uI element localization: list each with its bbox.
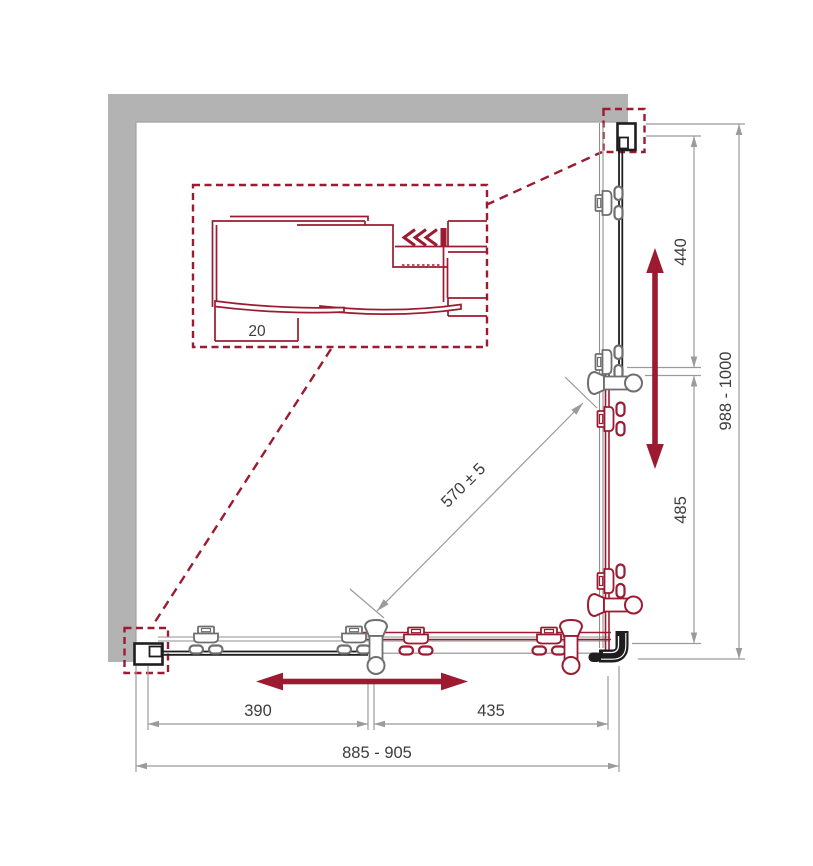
track-lines [158, 123, 610, 653]
wall-profile-top-right-notch [620, 138, 629, 149]
wall [108, 94, 628, 662]
roller-gray [190, 627, 223, 654]
sliding-door-red-lines [363, 360, 611, 650]
profile-outline [213, 221, 366, 307]
door-knob-red [588, 594, 642, 616]
arrowhead [597, 721, 608, 728]
arrow-shaft [281, 679, 443, 685]
detail-callouts [125, 109, 645, 673]
wall-inner-edge [136, 122, 628, 662]
arrowhead [691, 357, 698, 368]
shower-enclosure-dimension-drawing: 390 435 885 - 905 440 485 988 - 1000 570… [0, 0, 813, 866]
seal-backstop [441, 228, 447, 247]
plan-view-svg: 390 435 885 - 905 440 485 988 - 1000 570… [0, 0, 813, 866]
label-overall-depth-dim: 988 - 1000 [717, 352, 735, 431]
arrowhead [608, 763, 619, 770]
arrowhead [357, 721, 368, 728]
arrowhead [736, 124, 743, 135]
corner-bracket-foot [589, 653, 602, 663]
horizontal-slide-arrow [256, 673, 468, 691]
vertical-slide-arrow [646, 248, 664, 469]
wall-profile-bottom-left-notch [150, 647, 162, 657]
wall-profiles [135, 124, 636, 665]
callout-line-top [486, 152, 602, 205]
corner-bracket [589, 631, 626, 662]
roller-red [598, 565, 625, 598]
dim-line-diagonal [377, 403, 583, 611]
label-profile-detail-dim: 20 [248, 323, 266, 340]
arrow-head-up [646, 248, 664, 273]
label-bottom-left-dim: 390 [244, 702, 272, 720]
label-right-upper-dim: 440 [672, 238, 690, 266]
roller-red [533, 628, 566, 655]
arrowhead [691, 136, 698, 147]
arrowhead [148, 721, 159, 728]
roller-red [598, 403, 625, 436]
arrowhead [136, 763, 147, 770]
profile-right-bracket-top [448, 221, 487, 247]
chevron-seal-icon [426, 230, 437, 246]
arrowhead [691, 376, 698, 387]
arrow-head-left [256, 673, 283, 691]
roller-red [400, 628, 433, 655]
label-overall-width-dim: 885 - 905 [342, 744, 412, 762]
door-hardware-gray [190, 187, 643, 675]
arrowhead [736, 648, 743, 659]
wall-left-band [108, 94, 136, 662]
label-diagonal-dim: 570 ± 5 [438, 460, 490, 512]
diagonal-end-stroke [350, 589, 384, 618]
arrow-head-right [441, 673, 468, 691]
callout-line-bottom [153, 349, 331, 625]
arrowhead [691, 633, 698, 644]
label-right-lower-dim: 485 [672, 496, 690, 524]
wall-top-band [108, 94, 628, 122]
arrow-shaft [652, 271, 658, 446]
arrow-head-down [646, 444, 664, 469]
label-bottom-right-dim: 435 [477, 702, 505, 720]
arrowhead [374, 721, 385, 728]
